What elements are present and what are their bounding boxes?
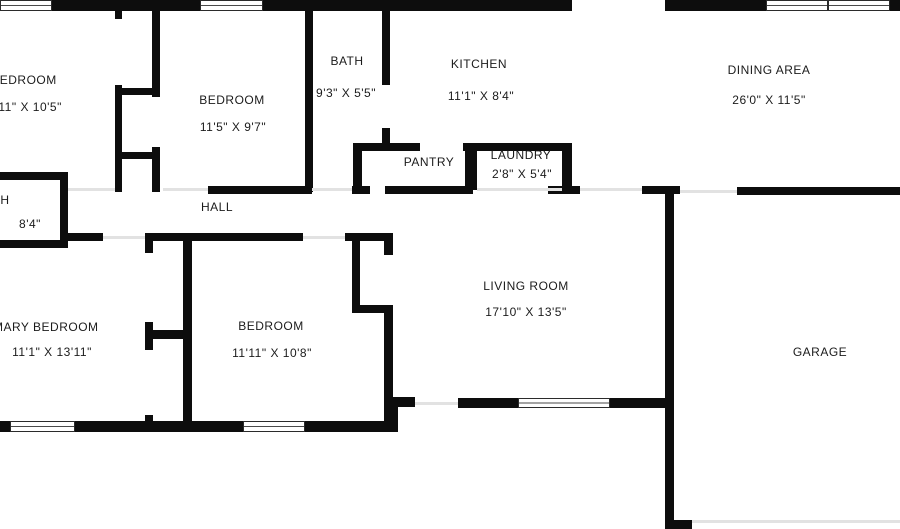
door-opening <box>692 520 900 523</box>
wall <box>145 330 183 339</box>
room-label-dining-area: DINING AREA <box>728 64 811 76</box>
door-opening <box>477 188 562 191</box>
wall <box>68 233 103 241</box>
room-dims-bedroom-top-middle: 11'5" X 9'7" <box>200 121 266 133</box>
wall <box>890 0 900 11</box>
window <box>0 0 52 11</box>
room-dims-bedroom-top-left: 11'11" X 10'5" <box>0 101 62 113</box>
wall <box>115 11 122 19</box>
room-dims-dining-area: 26'0" X 11'5" <box>732 94 805 106</box>
wall <box>263 0 572 11</box>
room-label-bath-top: BATH <box>330 55 363 67</box>
wall <box>115 152 160 159</box>
wall <box>0 172 68 180</box>
door-opening <box>68 188 115 191</box>
wall <box>345 233 393 241</box>
room-label-bedroom-top-left: BEDROOM <box>0 74 57 86</box>
wall <box>352 186 370 194</box>
wall <box>737 187 900 195</box>
door-opening <box>303 236 345 239</box>
wall <box>610 398 673 408</box>
wall <box>145 233 303 241</box>
door-opening <box>580 188 642 191</box>
wall <box>665 520 692 529</box>
room-dims-laundry: 2'8" X 5'4" <box>492 168 552 180</box>
room-dims-bath-left: 8'4" <box>19 218 41 230</box>
door-opening <box>415 402 458 405</box>
room-label-laundry: LAUNDRY <box>491 149 552 161</box>
room-dims-bath-top: 9'3" X 5'5" <box>316 87 376 99</box>
window <box>243 421 305 432</box>
room-dims-bedroom-bottom: 11'11" X 10'8" <box>232 347 312 359</box>
wall <box>0 240 68 248</box>
wall <box>465 151 477 190</box>
wall <box>384 241 393 255</box>
wall <box>562 151 572 190</box>
room-label-garage: GARAGE <box>793 346 847 358</box>
room-label-bath-left: BATH <box>0 194 10 206</box>
wall <box>115 85 122 192</box>
window <box>518 398 610 408</box>
window <box>766 0 828 11</box>
wall <box>208 186 312 194</box>
wall <box>382 11 390 85</box>
wall <box>305 11 313 192</box>
wall <box>353 143 420 151</box>
wall <box>458 398 518 408</box>
door-opening <box>312 188 352 191</box>
wall <box>305 421 395 432</box>
room-label-living-room: LIVING ROOM <box>483 280 569 292</box>
room-label-bedroom-top-middle: BEDROOM <box>199 94 265 106</box>
room-label-pantry: PANTRY <box>404 156 455 168</box>
room-label-hall: HALL <box>201 201 233 213</box>
room-label-kitchen: KITCHEN <box>451 58 507 70</box>
wall <box>145 241 153 253</box>
room-dims-living-room: 17'10" X 13'5" <box>485 306 567 318</box>
wall <box>52 0 200 11</box>
wall <box>115 88 160 95</box>
door-opening <box>163 188 208 191</box>
floor-plan: BEDROOM11'11" X 10'5"BEDROOM11'5" X 9'7"… <box>0 0 900 529</box>
wall <box>665 190 674 528</box>
wall <box>60 180 68 248</box>
wall <box>75 421 243 432</box>
room-dims-primary-bedroom: 11'1" X 13'11" <box>12 346 92 358</box>
wall <box>642 186 680 194</box>
door-opening <box>680 190 737 193</box>
wall <box>352 241 360 305</box>
wall <box>0 421 10 432</box>
wall <box>183 241 192 432</box>
wall <box>152 11 160 97</box>
room-label-bedroom-bottom: BEDROOM <box>238 320 304 332</box>
window <box>200 0 263 11</box>
room-label-primary-bedroom: PRIMARY BEDROOM <box>0 321 99 333</box>
window <box>828 0 890 11</box>
door-opening <box>103 236 145 239</box>
room-dims-kitchen: 11'1" X 8'4" <box>448 90 514 102</box>
wall <box>385 186 473 194</box>
window <box>10 421 75 432</box>
wall <box>665 0 766 11</box>
